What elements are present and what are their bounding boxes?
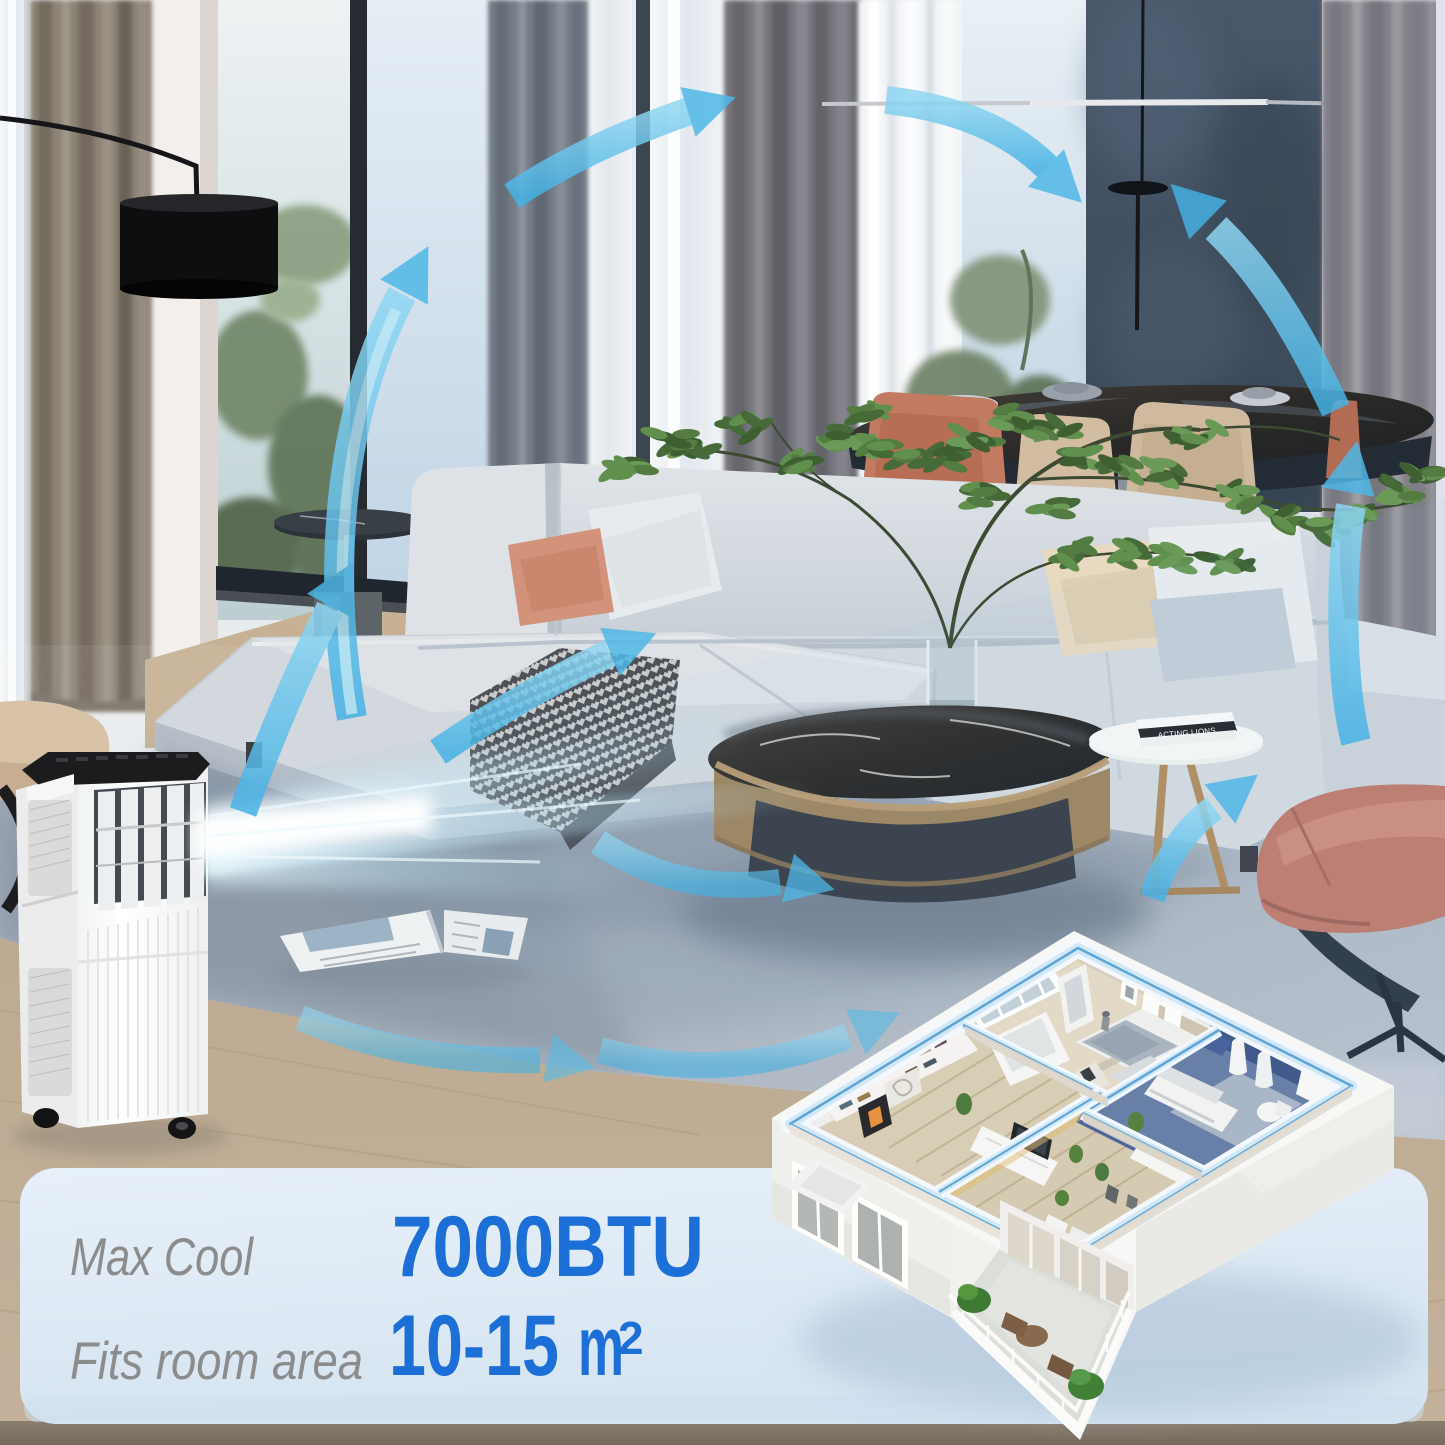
svg-text:7000BTU: 7000BTU: [392, 1199, 704, 1295]
svg-text:Fits room area: Fits room area: [70, 1332, 363, 1391]
svg-text:10-15: 10-15: [389, 1298, 559, 1394]
svg-text:2: 2: [618, 1312, 644, 1364]
svg-text:Max Cool: Max Cool: [70, 1228, 254, 1287]
